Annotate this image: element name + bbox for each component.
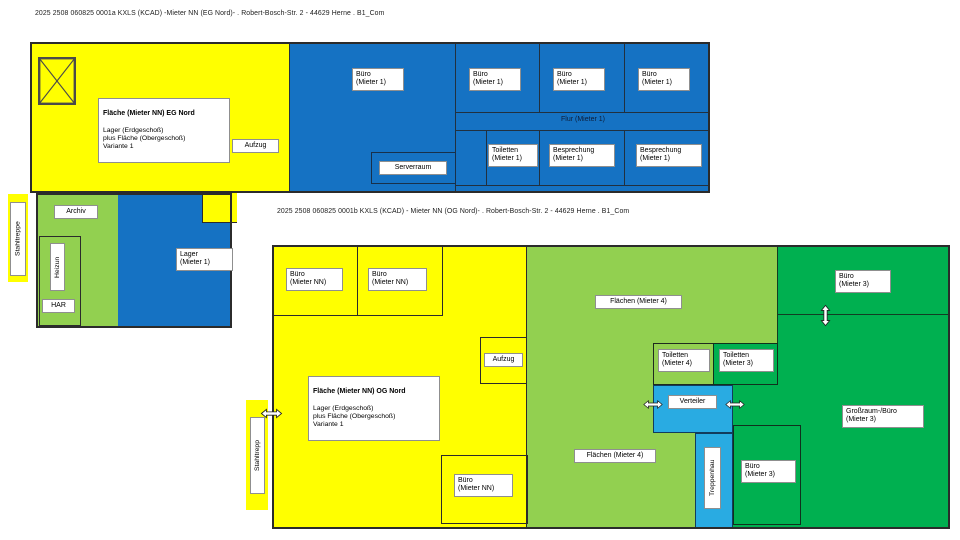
plan-og-title: 2025 2508 060825 0001b KXLS (KCAD) - Mie… (277, 208, 629, 215)
og-info-lines: Lager (Erdgeschoß) plus Fläche (Obergesc… (313, 405, 435, 429)
passage-arrow-horizontal-icon (725, 399, 745, 410)
wall (778, 314, 950, 315)
og-toiletten-m3-label: Toiletten (Mieter 3) (719, 349, 774, 372)
eg-serverraum-label: Serverraum (379, 161, 447, 175)
og-buero-m3-unten-label: Büro (Mieter 3) (741, 460, 796, 483)
og-info-box: Fläche (Mieter NN) OG Nord Lager (Erdges… (308, 376, 440, 441)
wall (624, 130, 625, 185)
eg-stahltreppe-label: Stahltreppe (10, 202, 26, 276)
eg-toiletten-label: Toiletten (Mieter 1) (488, 144, 538, 167)
og-flaechen-oben-label: Flächen (Mieter 4) (595, 295, 682, 309)
eg-har-label: HAR (42, 299, 75, 313)
elevator-shaft-x-icon (38, 57, 76, 105)
eg-info-lines: Lager (Erdgeschoß) plus Fläche (Obergesc… (103, 127, 225, 151)
wall (455, 130, 710, 131)
eg-buero3-label: Büro (Mieter 1) (553, 68, 605, 91)
eg-flur-label: Flur (Mieter 1) (456, 116, 710, 123)
og-verteiler-label: Verteiler (668, 395, 717, 409)
eg-info-heading: Fläche (Mieter NN) EG Nord (103, 110, 225, 118)
og-grossraum-label: Großraum-/Büro (Mieter 3) (842, 405, 924, 428)
passage-arrow-horizontal-icon (643, 399, 663, 410)
cad-floorplan-canvas: 2025 2508 060825 0001a KXLS (KCAD) -Miet… (0, 0, 960, 540)
og-buero-nn1-label: Büro (Mieter NN) (286, 268, 343, 291)
wall (455, 112, 710, 113)
eg-heizung-label: Heizun (50, 243, 65, 291)
wall (289, 42, 290, 193)
og-buero-nn2-label: Büro (Mieter NN) (368, 268, 427, 291)
eg-buero4-label: Büro (Mieter 1) (638, 68, 690, 91)
og-buero-m3-oben-label: Büro (Mieter 3) (835, 270, 891, 293)
og-toiletten-m4-label: Toiletten (Mieter 4) (658, 349, 710, 372)
og-info-heading: Fläche (Mieter NN) OG Nord (313, 388, 435, 396)
plan-eg-title: 2025 2508 060825 0001a KXLS (KCAD) -Miet… (35, 10, 384, 17)
wall (624, 42, 625, 112)
eg-buero2-label: Büro (Mieter 1) (469, 68, 521, 91)
eg-archiv-label: Archiv (54, 205, 98, 219)
eg-aufzug-label: Aufzug (232, 139, 279, 153)
og-treppenhaus-label: Treppenhau (704, 447, 721, 509)
eg-buero-gross-label: Büro (Mieter 1) (352, 68, 404, 91)
eg-lager-label: Lager (Mieter 1) (176, 248, 233, 271)
eg-besprechung1-label: Besprechung (Mieter 1) (549, 144, 615, 167)
og-stahltreppe-label: Stahltrepp (250, 417, 265, 494)
og-flaechen-unten-label: Flächen (Mieter 4) (574, 449, 656, 463)
og-buero-nn3-label: Büro (Mieter NN) (454, 474, 513, 497)
wall (455, 185, 710, 186)
wall (539, 42, 540, 112)
wall (539, 130, 540, 185)
eg-info-box: Fläche (Mieter NN) EG Nord Lager (Erdges… (98, 98, 230, 163)
og-aufzug-label: Aufzug (484, 353, 523, 367)
eg-besprechung2-label: Besprechung (Mieter 1) (636, 144, 702, 167)
wall (486, 130, 487, 185)
eg-yellow-notch (202, 193, 237, 223)
passage-arrow-vertical-icon (820, 303, 831, 328)
passage-arrow-horizontal-icon (260, 408, 283, 419)
